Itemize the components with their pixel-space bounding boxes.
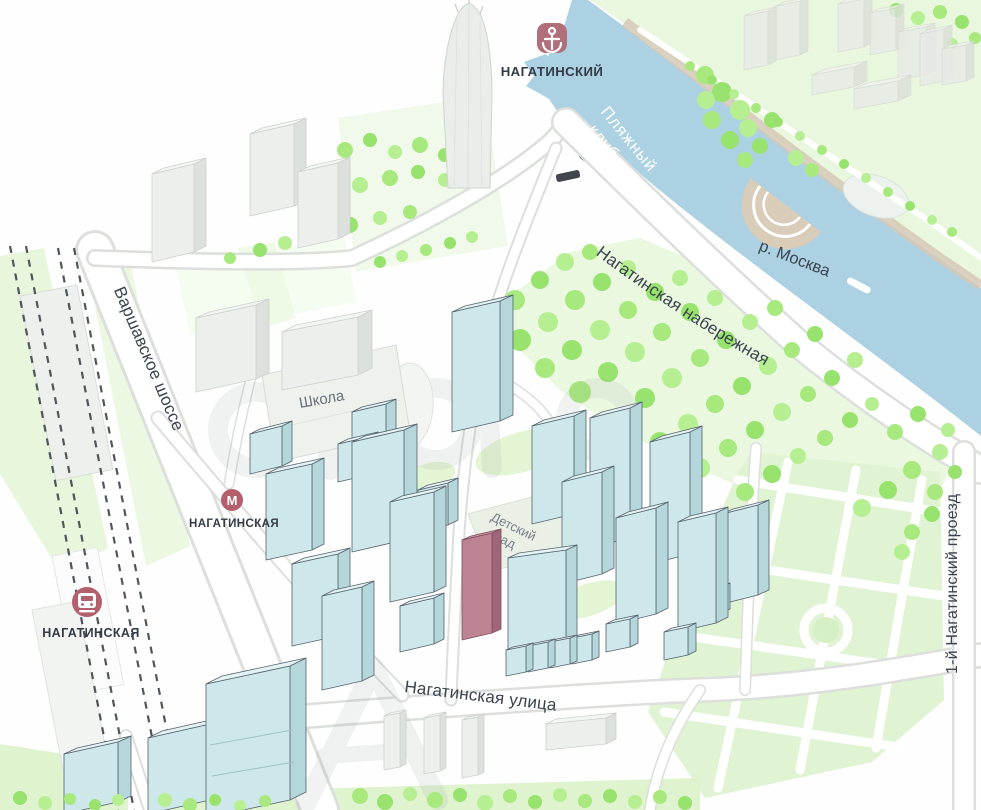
tree [824,370,840,386]
tree [565,290,585,310]
building [616,502,668,624]
building [506,643,533,676]
tree [730,100,750,120]
tree [538,312,558,332]
tree [927,484,943,500]
tree [839,159,849,169]
tree [947,227,957,237]
tree [373,211,387,225]
tree [883,187,893,197]
tree [706,395,724,413]
tree [444,237,456,249]
building [678,507,728,632]
tree [927,215,937,225]
map-canvas: Школа Детский сад Варшавское шоссе Нагат… [0,0,981,810]
tree [412,137,428,153]
tree [911,11,925,25]
tree [733,377,751,395]
tree [736,483,754,501]
tree [910,406,926,422]
tree [685,61,695,71]
building [152,158,206,262]
tree [721,131,739,149]
tree [894,544,910,560]
tree [259,795,271,807]
building [744,7,776,70]
tree [924,506,940,522]
tree [737,152,753,168]
tree [363,133,377,147]
tree [773,403,791,421]
tree [697,91,715,109]
tree [377,794,393,810]
tree [719,439,737,457]
tree [224,252,236,264]
tree [403,787,417,801]
tree [396,250,408,262]
tree [653,790,667,804]
tree [535,358,555,378]
tree [861,173,871,183]
tree [411,165,425,179]
tree [678,796,692,810]
tree [817,430,833,446]
tree [784,342,800,358]
tree [453,788,467,802]
tree [703,111,721,129]
tree [847,352,863,368]
tree [662,368,682,388]
building [390,486,446,602]
project-marker-label: НАГАТИНСКИЙ [501,64,604,79]
building [384,710,406,770]
tree [941,423,955,437]
building [462,714,484,778]
tree [807,326,823,342]
tree [739,119,757,137]
tree [767,300,783,316]
building [196,299,269,392]
tree [374,256,386,268]
tree [879,481,897,499]
tree [337,142,353,158]
tree [903,461,921,479]
tree [531,271,549,289]
tree [955,15,969,29]
tree [790,448,806,464]
tree [788,150,804,166]
tree [712,82,732,102]
railway-station-label: НАГАТИНСКАЯ [42,626,139,640]
tree [556,253,574,271]
building [546,713,616,750]
tree [904,524,920,540]
street-proezd: 1-й Нагатинский проезд [944,493,961,674]
map-illustration: Школа Детский сад Варшавское шоссе Нагат… [0,0,981,810]
tree [528,795,542,809]
tree [466,231,478,243]
tree [593,273,611,291]
tree [403,205,417,219]
tree [805,163,819,177]
tree [352,788,368,804]
tree [578,794,592,808]
tree [933,5,947,19]
tree [887,424,903,440]
park-circle-lawn [813,617,839,643]
tree [795,131,805,141]
tree [590,320,610,340]
tree [503,789,517,803]
tree [672,270,688,286]
building [776,0,808,60]
tree [112,794,124,806]
building [266,458,324,560]
building [942,41,974,85]
tree [158,793,172,807]
tree [853,499,871,517]
tree [209,794,221,806]
building [508,545,577,650]
building [322,581,374,690]
tree [905,201,915,211]
building [452,295,513,432]
tree [64,793,76,805]
tree [763,465,781,483]
tree [388,145,402,159]
tree [707,75,717,85]
building [606,615,638,652]
tree [948,465,962,479]
tree [842,412,858,428]
tree [13,791,27,805]
tree [746,421,764,439]
tree [932,444,948,460]
skyscraper-tower [443,0,492,188]
tree [553,788,567,802]
tree [729,89,739,99]
tree [38,796,52,810]
tree [562,340,582,360]
metro-station-label: НАГАТИНСКАЯ [189,518,279,530]
tree [619,301,637,319]
tree [800,386,816,402]
tree [382,170,398,186]
tree [752,138,768,154]
tree [427,792,443,808]
tree [865,397,879,411]
car [555,170,580,183]
tree [628,795,642,809]
tree [691,349,709,367]
tree [352,177,368,193]
tree [773,117,783,127]
tree [653,323,671,341]
highlighted-building[interactable] [462,529,501,640]
tree [278,236,292,250]
tree [253,243,267,257]
building [298,157,350,248]
building [838,0,872,52]
metro-icon-letter: М [227,493,238,508]
tree [817,145,827,155]
building [400,593,444,652]
building [206,658,306,810]
tree [603,789,617,803]
tree [420,244,432,256]
tree [625,342,645,362]
tree [751,103,761,113]
building [424,712,446,774]
tree [742,314,758,330]
tree [707,290,723,306]
